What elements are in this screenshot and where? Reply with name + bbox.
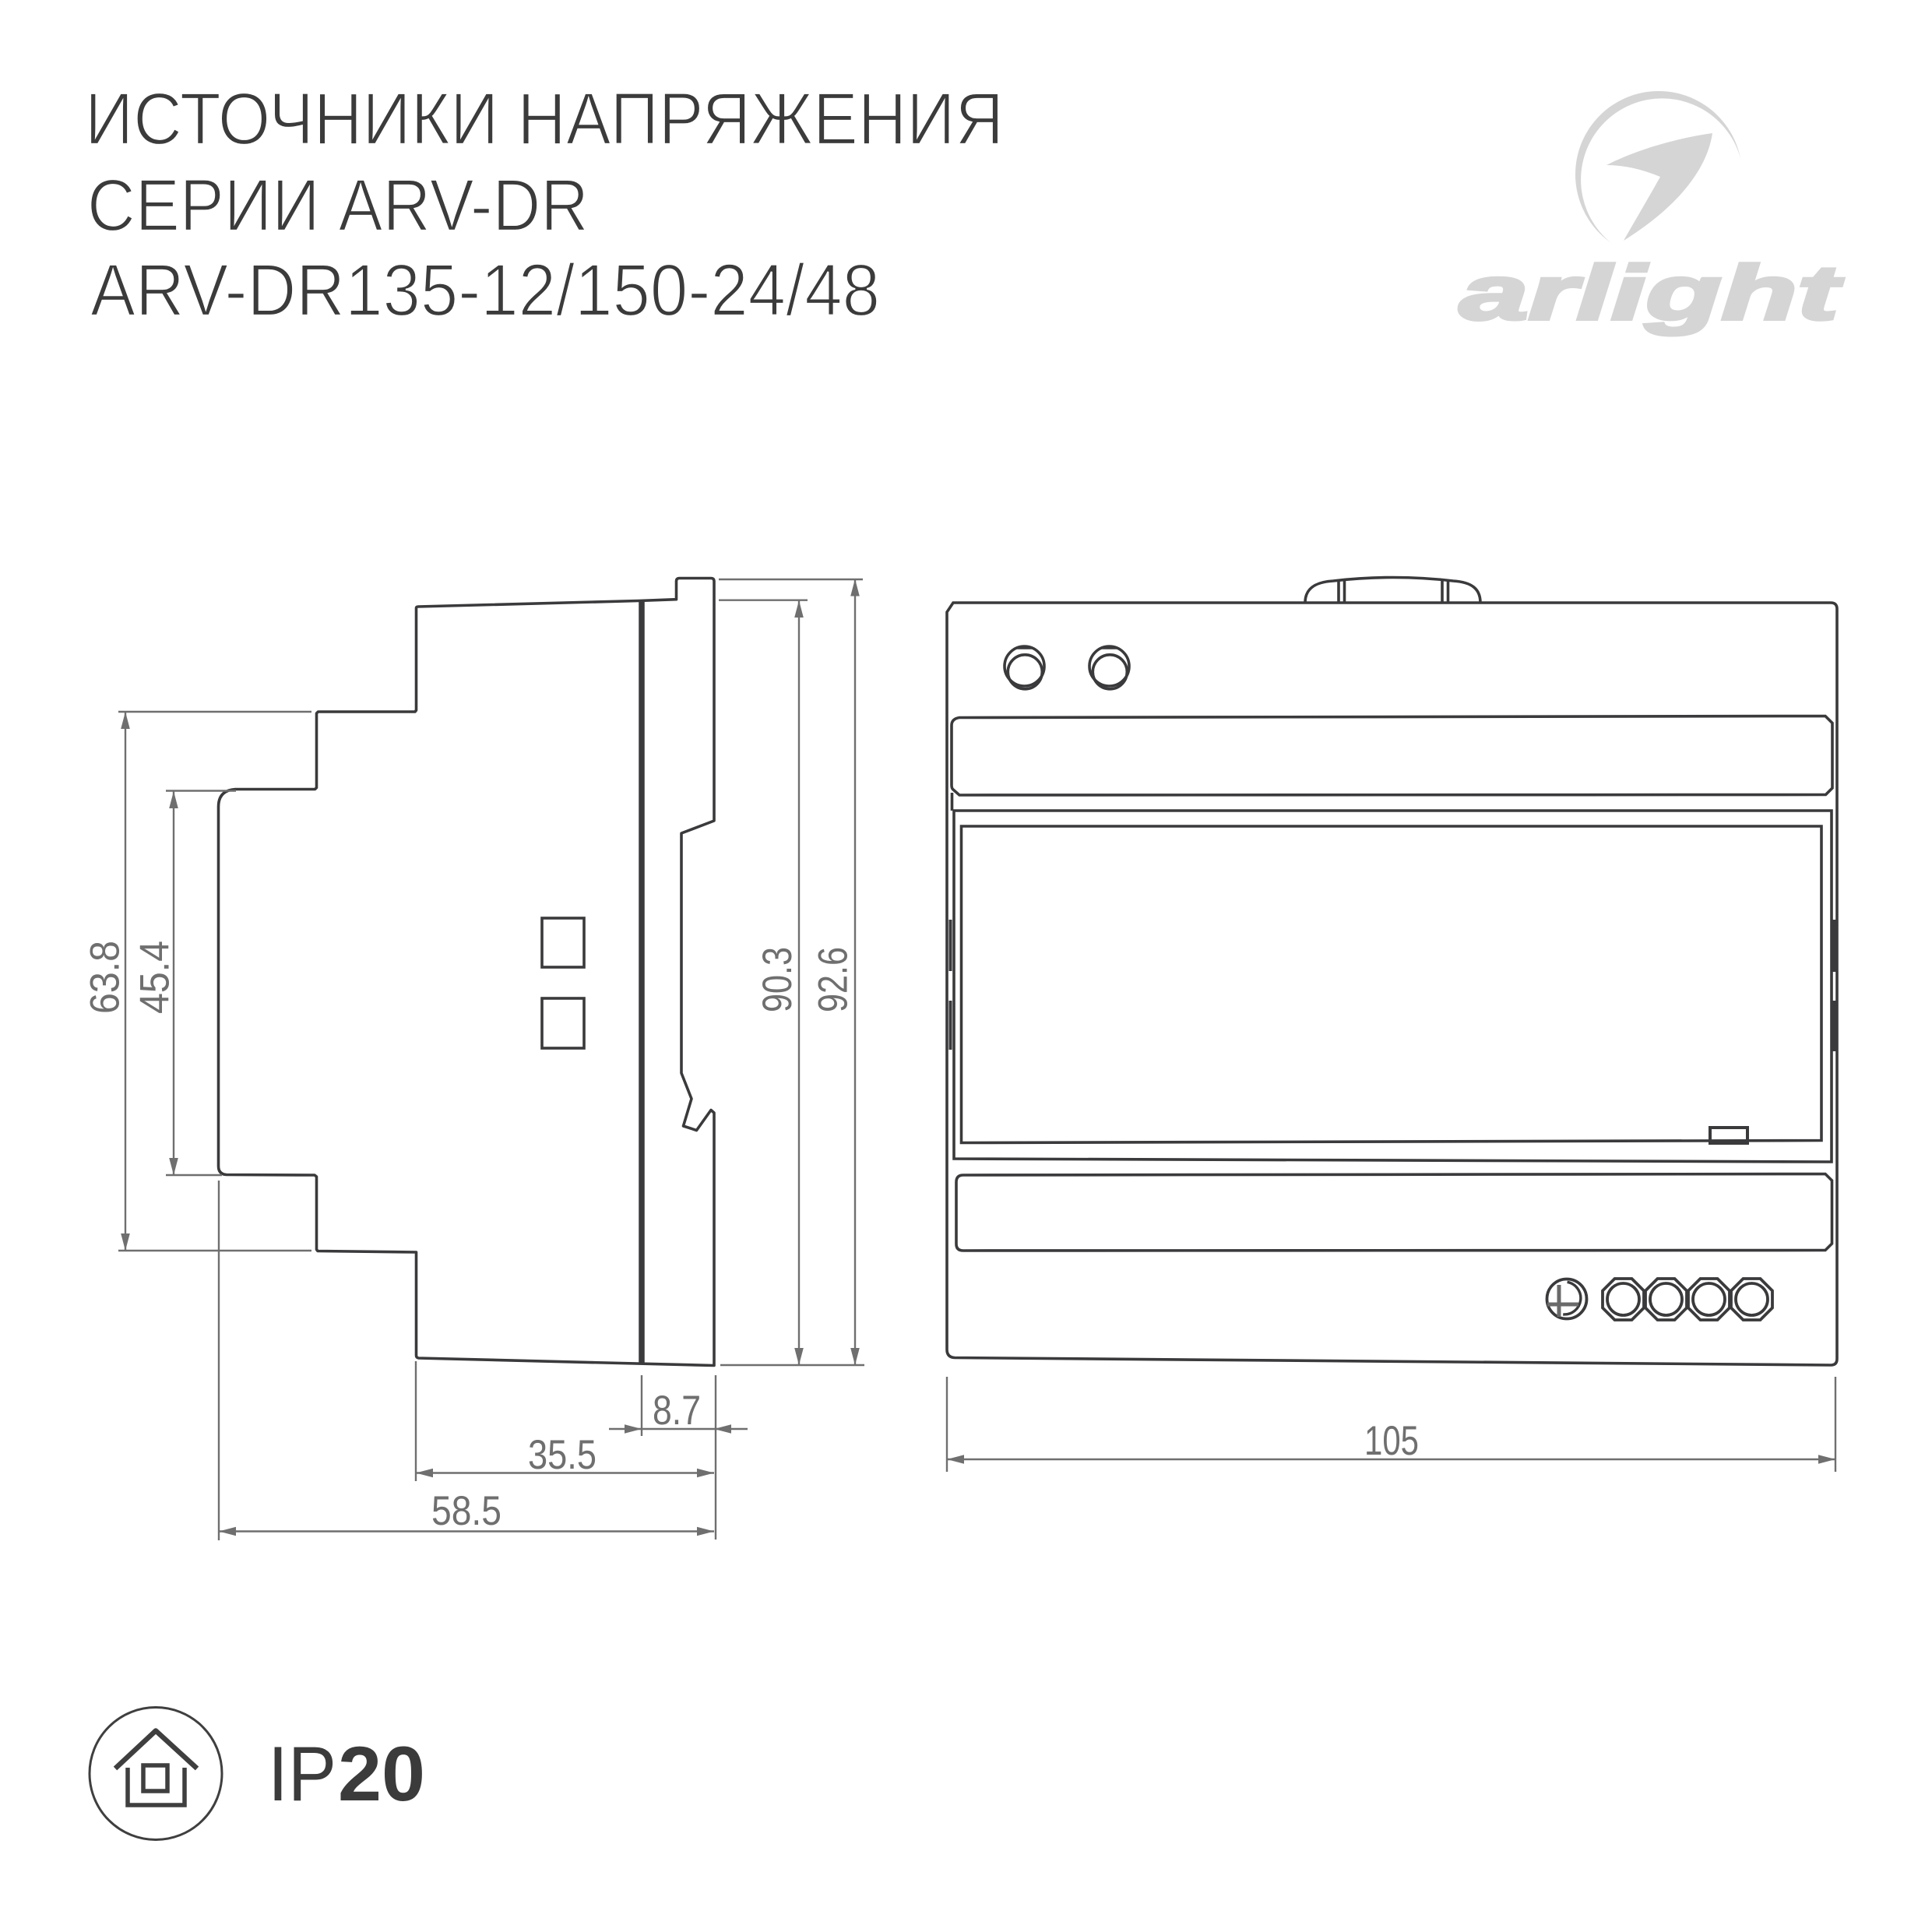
svg-text:IP: IP [268,1730,336,1817]
svg-text:ARV-DR135-12/150-24/48: ARV-DR135-12/150-24/48 [90,249,880,332]
svg-text:45.4: 45.4 [132,941,178,1014]
svg-text:8.7: 8.7 [653,1388,701,1434]
svg-text:105: 105 [1364,1418,1419,1464]
svg-text:ИСТОЧНИКИ НАПРЯЖЕНИЯ: ИСТОЧНИКИ НАПРЯЖЕНИЯ [85,78,1004,160]
svg-text:20: 20 [338,1730,425,1817]
svg-text:90.3: 90.3 [755,947,801,1012]
svg-text:58.5: 58.5 [431,1488,501,1534]
svg-text:35.5: 35.5 [528,1432,596,1478]
svg-text:92.6: 92.6 [811,947,857,1012]
svg-text:arlight: arlight [1459,249,1843,336]
svg-text:63.8: 63.8 [83,941,128,1014]
svg-text:СЕРИИ ARV-DR: СЕРИИ ARV-DR [87,164,589,247]
